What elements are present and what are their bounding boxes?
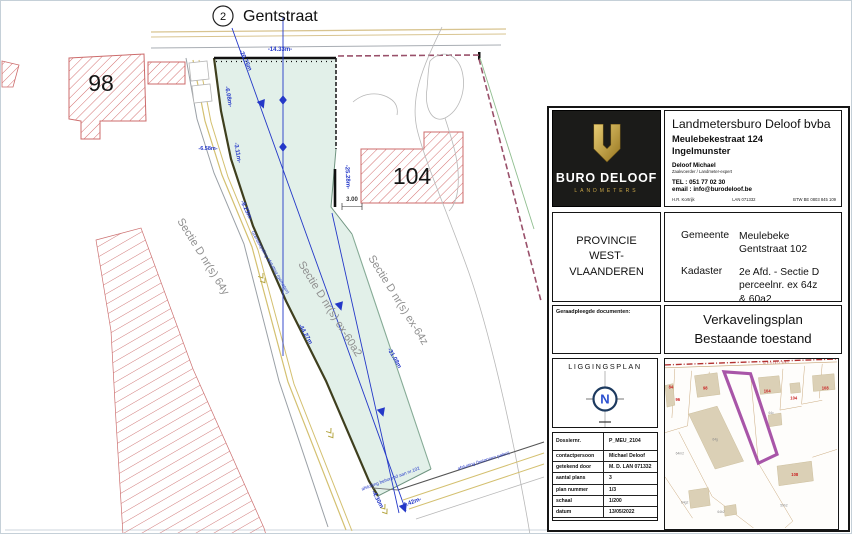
plancount-value: 3 — [604, 473, 657, 483]
registration-hr: H.R. Kortrijk — [672, 197, 695, 202]
date-label: datum — [553, 507, 604, 517]
contact-label: contactpersoon — [553, 451, 604, 461]
building-98 — [69, 54, 146, 139]
contact-value: Michael Deloof — [604, 451, 657, 461]
street-node-number: 2 — [220, 11, 226, 23]
svg-text:98: 98 — [703, 385, 708, 390]
plannumber-value: 1/3 — [604, 485, 657, 495]
svg-text:64m2: 64m2 — [676, 451, 684, 455]
building-annex — [148, 62, 185, 84]
road-gentstraat — [151, 29, 506, 60]
dim-bracket — [342, 203, 362, 210]
scale-label: schaal — [553, 496, 604, 506]
plan-title-line2: Bestaande toestand — [694, 330, 811, 348]
svg-text:-6.58m-: -6.58m- — [198, 146, 217, 152]
location-map-box: Gentstraat 84 96 98 104 104 108 108 64c … — [664, 358, 839, 530]
north-compass-icon: N — [554, 371, 656, 427]
svg-text:59h2: 59h2 — [780, 503, 788, 507]
plan-title-box: Verkavelingsplan Bestaande toestand — [664, 305, 842, 354]
company-info-box: Landmetersburo Deloof bvba Meulebekestra… — [664, 110, 842, 207]
svg-text:afsluiting (betonnen palen): afsluiting (betonnen palen) — [457, 450, 511, 471]
table-row-scale: schaal 1/200 — [553, 496, 657, 507]
svg-text:104: 104 — [790, 395, 798, 400]
parcel-104-label: 104 — [393, 163, 432, 189]
table-row-plancount: aantal plans 3 — [553, 473, 657, 484]
contact-person: Deloof Michael — [672, 162, 834, 169]
parcel-98-label: 98 — [88, 70, 114, 96]
svg-text:104: 104 — [764, 388, 772, 393]
svg-text:64g: 64g — [712, 438, 718, 442]
drawing-info-table: Dossiernr. P_MEU_2104 contactpersoon Mic… — [552, 432, 658, 521]
svg-text:108: 108 — [822, 385, 830, 390]
kadaster-value-parcel: perceelnr. ex 64z — [739, 279, 819, 292]
plan-title-line1: Verkavelingsplan — [703, 311, 803, 329]
survey-plan-sheet: 2 Gentstraat 98 104 Sectie D nr(s) 64y S… — [0, 0, 852, 534]
liggingsplan-label: LIGGINGSPLAN — [553, 362, 657, 371]
table-row-drawnby: getekend door M. D. LAN 071332 — [553, 462, 657, 473]
kadaster-label: Kadaster — [681, 266, 739, 306]
drawnby-label: getekend door — [553, 462, 604, 472]
company-logo: BURO DELOOF LANDMETERS — [552, 110, 661, 207]
dossier-label: Dossiernr. — [553, 433, 604, 450]
date-value: 13/05/2022 — [604, 507, 657, 517]
registration-lan: LAN 071332 — [732, 197, 755, 202]
buro-deloof-monogram-icon — [590, 124, 624, 166]
liggingsplan-box: LIGGINGSPLAN N — [552, 358, 658, 428]
table-row-dossier: Dossiernr. P_MEU_2104 — [553, 433, 657, 451]
consulted-documents-label: Geraadpleegde documenten: — [556, 309, 630, 315]
registration-btw: BTW BE 0803 845 109 — [793, 197, 836, 202]
dossier-value: P_MEU_2104 — [604, 433, 657, 450]
svg-text:84: 84 — [669, 384, 674, 389]
kadaster-value-section: 2e Afd. - Sectie D — [739, 266, 819, 279]
gemeente-label: Gemeente — [681, 230, 739, 257]
table-row-date: datum 13/05/2022 — [553, 507, 657, 518]
company-email: email : info@burodeloof.be — [672, 186, 834, 193]
table-row-contact: contactpersoon Michael Deloof — [553, 451, 657, 462]
svg-text:96: 96 — [676, 397, 681, 402]
province-box: PROVINCIE WEST-VLAANDEREN — [552, 212, 661, 302]
consulted-documents-box: Geraadpleegde documenten: — [552, 305, 661, 354]
gemeente-value-city: Meulebeke — [739, 230, 807, 243]
svg-text:-25.28m-: -25.28m- — [343, 165, 350, 190]
logo-sub-text: LANDMETERS — [574, 188, 638, 194]
sectie-label-64y: Sectie D nr(s) 64y — [174, 216, 231, 297]
cadastral-info-box: Gemeente Meulebeke Gentstraat 102 Kadast… — [664, 212, 842, 302]
hatched-zone-southwest — [96, 228, 266, 534]
company-address-city: Ingelmunster — [672, 146, 834, 158]
kadaster-value-parcel2: & 60a2 — [739, 293, 819, 306]
north-letter: N — [600, 392, 609, 407]
contact-person-role: Zaakvoerder / Landmeter-expert — [672, 169, 834, 174]
gemeente-value-street: Gentstraat 102 — [739, 243, 807, 256]
table-row-plannumber: plan nummer 1/3 — [553, 485, 657, 496]
svg-text:-14.33m-: -14.33m- — [268, 47, 292, 53]
boundary-green-line — [480, 58, 534, 229]
plannumber-label: plan nummer — [553, 485, 604, 495]
province-line1: PROVINCIE — [553, 234, 660, 249]
scale-value: 1/200 — [604, 496, 657, 506]
province-line2: WEST-VLAANDEREN — [553, 249, 660, 280]
drawnby-value: M. D. LAN 071332 — [604, 462, 657, 472]
plancount-label: aantal plans — [553, 473, 604, 483]
logo-brand-text: BURO DELOOF — [556, 171, 657, 185]
svg-text:108: 108 — [791, 472, 799, 477]
company-name: Landmetersburo Deloof bvba — [672, 117, 834, 131]
svg-text:3.00: 3.00 — [346, 197, 358, 203]
svg-text:64c: 64c — [768, 411, 774, 415]
location-map: Gentstraat 84 96 98 104 104 108 108 64c … — [665, 359, 837, 528]
company-address-street: Meulebekestraat 124 — [672, 134, 834, 146]
building-left-edge — [2, 61, 19, 87]
street-name-label: Gentstraat — [243, 8, 318, 25]
company-phone: TEL : 051 77 02 30 — [672, 179, 834, 186]
svg-text:64g2: 64g2 — [681, 500, 689, 504]
company-registration-row: H.R. Kortrijk LAN 071332 BTW BE 0803 845… — [672, 197, 836, 202]
svg-text:64b2: 64b2 — [717, 510, 725, 514]
highlight-parcel-ex60a2 — [214, 58, 431, 496]
